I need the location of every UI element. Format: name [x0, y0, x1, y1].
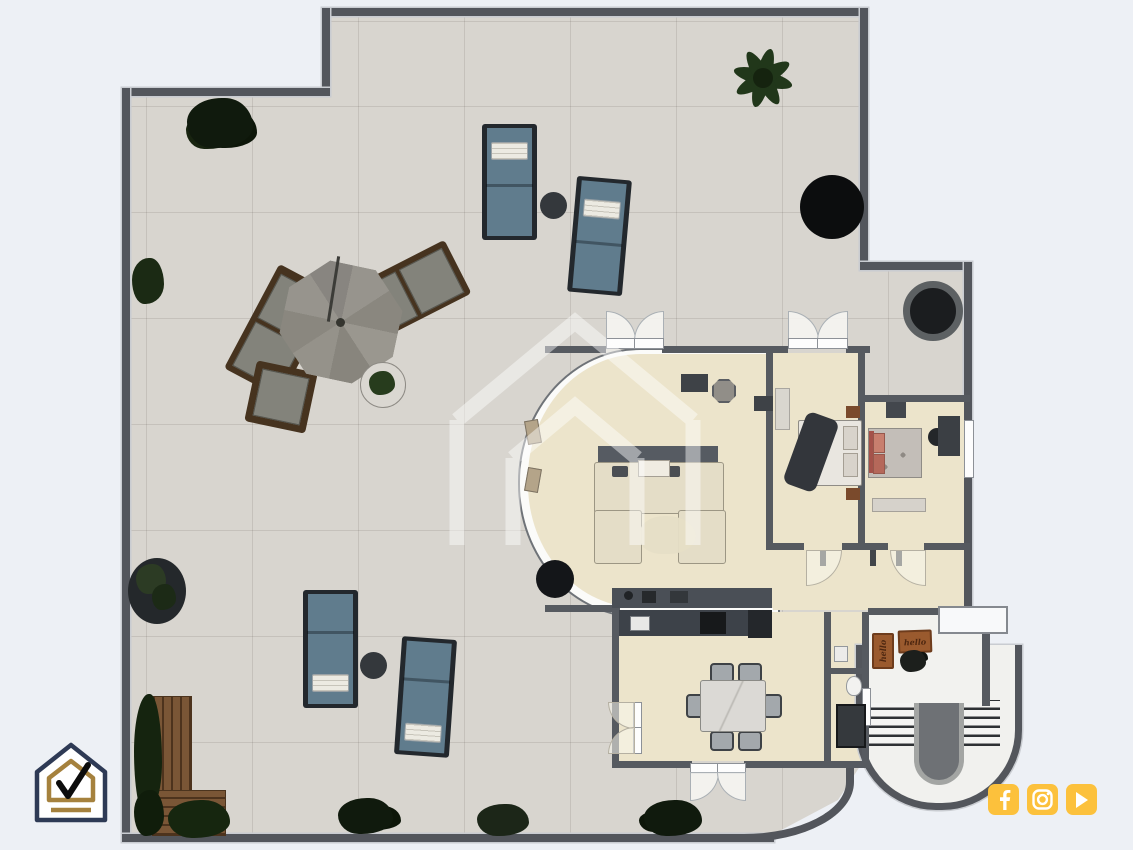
terrace-round-table	[536, 560, 574, 598]
side-table	[360, 652, 387, 679]
sun-lounger	[567, 176, 632, 296]
counter-appliance	[642, 591, 656, 603]
ivy-plants	[168, 800, 230, 838]
exterior-wall-top	[322, 8, 868, 16]
kitchen-counter-upper	[612, 588, 772, 608]
building-bottom-wall	[612, 761, 692, 768]
media-unit	[754, 396, 773, 411]
round-planter	[128, 558, 186, 624]
lounger-cushion	[572, 180, 626, 292]
dining-table	[700, 680, 766, 732]
entry-ledge	[938, 606, 1008, 634]
toilet	[846, 676, 862, 696]
exterior-wall-step-horizontal	[122, 88, 330, 96]
living-bottom-wall	[545, 605, 620, 612]
social-links	[988, 784, 1097, 815]
hallway-wall	[842, 543, 888, 550]
umbrella-hub	[336, 318, 345, 327]
exterior-wall-left	[122, 88, 130, 842]
counter-appliance	[670, 591, 688, 603]
side-table	[540, 192, 567, 219]
bathroom-inner-wall	[831, 668, 869, 674]
kitchen-sink	[630, 616, 650, 631]
door-leaf	[788, 338, 819, 349]
exterior-wall-step-right	[860, 262, 972, 270]
bench	[872, 498, 926, 512]
lounger-pillow	[404, 723, 442, 744]
palm-plant	[730, 40, 796, 116]
exterior-wall-right-upper	[860, 8, 868, 270]
fire-pit	[800, 175, 864, 239]
desk	[938, 416, 960, 456]
kitchen-column	[748, 610, 772, 638]
floor-plan-canvas: hello hello	[0, 0, 1133, 850]
sun-lounger	[394, 636, 457, 758]
nightstand	[846, 406, 860, 418]
entry-top-wall	[868, 608, 944, 615]
dining-chair	[738, 731, 762, 751]
lounger-pillow	[491, 142, 528, 160]
window-slit	[964, 420, 974, 478]
doormat-text: hello	[879, 640, 887, 662]
lounger-seam	[307, 631, 354, 634]
stair-well	[914, 696, 964, 785]
bush	[644, 800, 702, 836]
shower	[836, 704, 866, 748]
facebook-icon[interactable]	[988, 784, 1019, 815]
hallway-wall	[924, 543, 970, 550]
bed	[868, 428, 922, 478]
dresser	[886, 402, 906, 418]
house-check-logo	[32, 740, 110, 826]
lounger-seam	[486, 184, 533, 187]
planter-box-plants	[187, 98, 253, 148]
hallway-floor	[773, 548, 964, 610]
stove	[700, 612, 726, 634]
sun-lounger	[482, 124, 537, 240]
sun-lounger	[303, 590, 358, 708]
ivy-plants	[134, 790, 164, 836]
wardrobe	[775, 388, 790, 430]
doormat: hello	[872, 633, 894, 669]
wall-plant	[132, 258, 164, 304]
bush	[338, 798, 393, 834]
bush	[477, 804, 529, 836]
living-bedroom-divider	[766, 350, 773, 550]
exterior-wall-step-vertical	[322, 8, 330, 96]
instagram-icon[interactable]	[1027, 784, 1058, 815]
bed-pillow	[843, 453, 858, 477]
bed-pillow	[873, 433, 885, 453]
entry-plant	[900, 650, 926, 672]
hallway-wall	[770, 543, 804, 550]
house-outline-watermark-icon	[445, 300, 705, 545]
potted-plant	[369, 371, 395, 395]
kitchen-bath-divider	[824, 612, 831, 768]
lounger-pillow	[583, 199, 621, 220]
door-frame-stub	[870, 550, 876, 566]
dining-chair	[710, 731, 734, 751]
planter-pot	[903, 281, 963, 341]
bedroom-2-top-wall	[862, 395, 970, 402]
building-bottom-wall	[744, 761, 870, 768]
bed-pillow	[843, 426, 858, 450]
plant-table	[360, 362, 406, 408]
youtube-icon[interactable]	[1066, 784, 1097, 815]
door-leaf	[817, 338, 848, 349]
kettle	[624, 591, 633, 600]
bed-pillow	[873, 454, 885, 474]
stairs-left	[868, 700, 914, 746]
lounger-pillow	[312, 674, 349, 692]
doormat-text: hello	[904, 637, 927, 646]
planter-foliage	[152, 584, 176, 610]
bath-sink	[834, 646, 848, 662]
nightstand	[846, 488, 860, 500]
chair-cushion	[253, 369, 310, 426]
